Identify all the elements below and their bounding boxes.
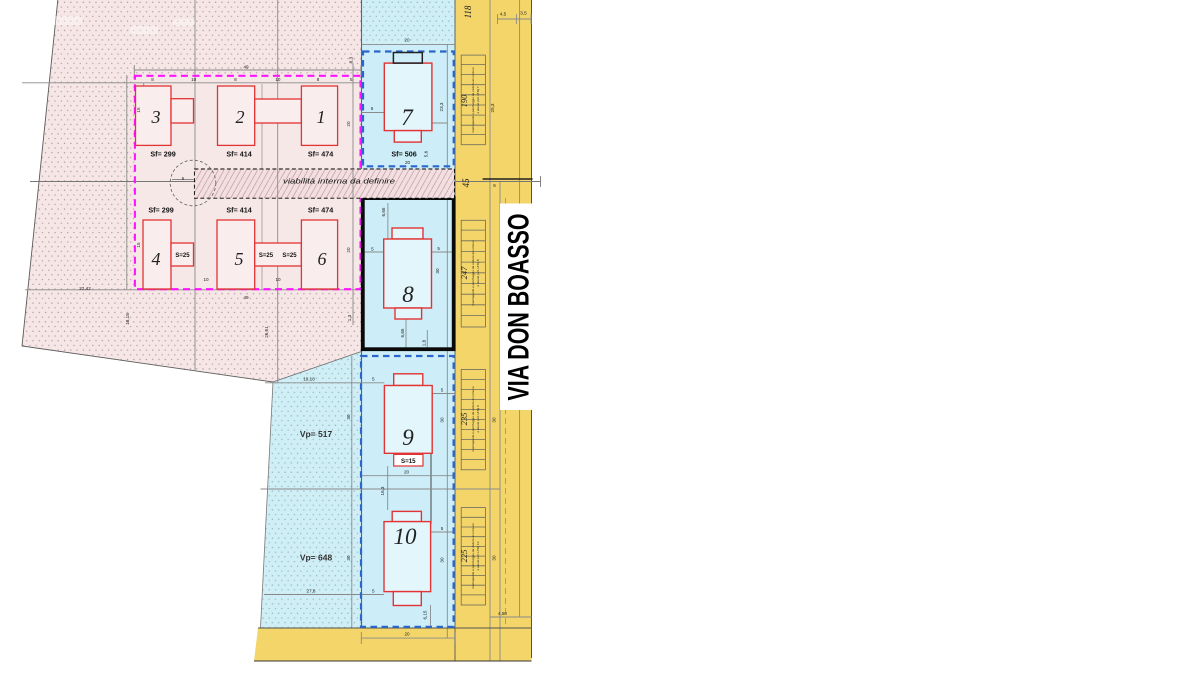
svg-text:30: 30	[440, 557, 445, 563]
svg-text:VIA DON BOASSO: VIA DON BOASSO	[503, 214, 536, 401]
svg-text:49: 49	[243, 295, 249, 300]
svg-text:15: 15	[136, 242, 141, 248]
svg-text:S=25: S=25	[282, 253, 297, 259]
svg-text:22,42: 22,42	[79, 286, 91, 291]
svg-text:S=15: S=15	[401, 458, 416, 465]
svg-text:2: 2	[236, 107, 245, 127]
svg-text:8: 8	[402, 282, 414, 307]
svg-text:4,50: 4,50	[498, 611, 507, 616]
svg-text:5: 5	[350, 77, 353, 82]
svg-text:Sf= 414: Sf= 414	[226, 206, 251, 215]
svg-text:Sf= 506: Sf= 506	[391, 150, 416, 159]
svg-text:e aiuole (art. LTR) 7: e aiuole (art. LTR) 7	[476, 86, 480, 114]
svg-text:3,5: 3,5	[520, 11, 527, 16]
svg-text:7: 7	[401, 105, 414, 130]
svg-text:235: 235	[459, 413, 469, 426]
svg-text:118: 118	[463, 5, 473, 18]
svg-text:marciapiede e parcheggio da ce: marciapiede e parcheggio da cedere al co…	[471, 67, 475, 133]
svg-text:marciapiede e parcheggio da ce: marciapiede e parcheggio da cedere al co…	[471, 386, 475, 452]
svg-text:Sf= 299: Sf= 299	[150, 150, 175, 159]
svg-text:247: 247	[459, 266, 469, 280]
svg-text:4: 4	[152, 249, 161, 269]
svg-text:8: 8	[317, 77, 320, 82]
svg-text:30: 30	[346, 555, 351, 561]
svg-text:S=25: S=25	[175, 253, 190, 259]
svg-text:25,3: 25,3	[490, 103, 495, 112]
svg-text:20: 20	[346, 247, 351, 253]
svg-text:8,3: 8,3	[349, 56, 354, 63]
svg-text:S=25: S=25	[259, 253, 274, 259]
svg-text:6: 6	[493, 183, 496, 188]
svg-text:5: 5	[372, 376, 375, 381]
svg-text:20: 20	[404, 470, 410, 475]
svg-text:3: 3	[151, 107, 161, 127]
svg-text:16,3: 16,3	[380, 486, 385, 495]
svg-text:5: 5	[182, 176, 185, 181]
svg-text:1,8: 1,8	[422, 339, 427, 346]
svg-text:Sf= 299: Sf= 299	[148, 206, 173, 215]
svg-text:6: 6	[318, 249, 327, 269]
svg-text:6,15: 6,15	[423, 610, 428, 619]
svg-text:marciapiede e parcheggio da ce: marciapiede e parcheggio da cedere al co…	[471, 523, 475, 589]
svg-text:10: 10	[275, 77, 281, 82]
svg-text:5,6: 5,6	[424, 150, 429, 157]
svg-text:5: 5	[372, 589, 375, 594]
svg-text:marciapiede e parcheggio da ce: marciapiede e parcheggio da cedere al co…	[471, 240, 475, 306]
svg-text:4,5: 4,5	[500, 12, 507, 17]
svg-text:20: 20	[404, 632, 410, 637]
svg-text:10: 10	[191, 77, 197, 82]
svg-text:27,8: 27,8	[307, 589, 316, 594]
svg-text:6,65: 6,65	[400, 328, 405, 337]
svg-text:e aiuole (art. LTR) 10: e aiuole (art. LTR) 10	[476, 541, 480, 570]
svg-text:10: 10	[203, 277, 209, 282]
svg-text:9: 9	[402, 425, 414, 450]
svg-text:Sf= 414: Sf= 414	[226, 150, 251, 159]
svg-text:26,51: 26,51	[264, 326, 269, 338]
svg-text:10: 10	[394, 524, 418, 549]
svg-text:45: 45	[461, 178, 471, 188]
svg-text:20: 20	[346, 121, 351, 127]
svg-text:30: 30	[440, 417, 445, 423]
svg-text:e aiuole (art. LTR) 8: e aiuole (art. LTR) 8	[476, 259, 480, 287]
svg-text:1: 1	[317, 107, 326, 127]
svg-text:20: 20	[404, 38, 410, 43]
svg-text:e aiuole (art. LTR) 9: e aiuole (art. LTR) 9	[476, 405, 480, 433]
svg-text:225: 225	[459, 550, 469, 563]
svg-text:23,3: 23,3	[439, 102, 444, 111]
svg-text:30: 30	[346, 414, 351, 420]
svg-text:8: 8	[151, 77, 154, 82]
svg-text:5: 5	[437, 246, 440, 251]
svg-text:5: 5	[441, 388, 444, 393]
svg-text:30: 30	[492, 417, 497, 423]
svg-text:15: 15	[136, 107, 141, 113]
svg-text:5: 5	[235, 249, 244, 269]
svg-text:viabilità interna da definire: viabilità interna da definire	[283, 177, 395, 186]
svg-text:190: 190	[459, 94, 469, 108]
svg-text:19,18: 19,18	[303, 377, 315, 382]
svg-text:Sf= 474: Sf= 474	[308, 206, 333, 215]
svg-text:1,3: 1,3	[347, 314, 352, 321]
svg-text:6,65: 6,65	[381, 207, 386, 216]
svg-text:10: 10	[275, 277, 281, 282]
svg-text:49: 49	[243, 65, 249, 70]
svg-text:5: 5	[371, 106, 374, 111]
svg-text:18,18: 18,18	[125, 313, 130, 325]
svg-text:30: 30	[492, 555, 497, 561]
svg-text:5: 5	[441, 526, 444, 531]
svg-text:Vp= 517: Vp= 517	[300, 429, 333, 439]
svg-text:8: 8	[234, 77, 237, 82]
svg-text:Vp= 648: Vp= 648	[300, 553, 333, 563]
svg-text:30: 30	[435, 268, 440, 274]
svg-text:5: 5	[371, 246, 374, 251]
svg-text:20: 20	[405, 160, 411, 165]
svg-text:Sf= 474: Sf= 474	[308, 150, 333, 159]
